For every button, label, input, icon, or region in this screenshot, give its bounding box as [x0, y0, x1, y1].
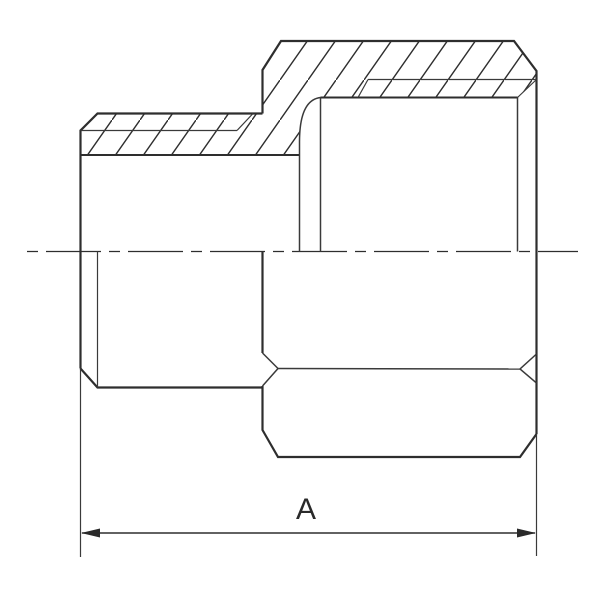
dimension-label: A [296, 493, 316, 526]
hex-chevron-right [520, 354, 537, 383]
dimension-arrowhead-right [517, 529, 536, 538]
hex-flat-edge-line [278, 369, 520, 370]
hex-chevron-left [263, 353, 279, 386]
socket-shoulder-lines [300, 80, 537, 252]
dimension-arrowhead-left [81, 529, 100, 538]
dimension-a: A [81, 369, 537, 558]
technical-drawing-canvas: A [0, 0, 600, 600]
male-end-lower-outline [81, 369, 263, 388]
pipe-fitting-half-section-drawing: A [0, 0, 600, 600]
outside-view-lower [81, 252, 537, 458]
hex-body-lower-outline [263, 252, 537, 458]
hex-detail-lines [98, 252, 537, 388]
shoulder-fillet-curve [300, 98, 321, 252]
